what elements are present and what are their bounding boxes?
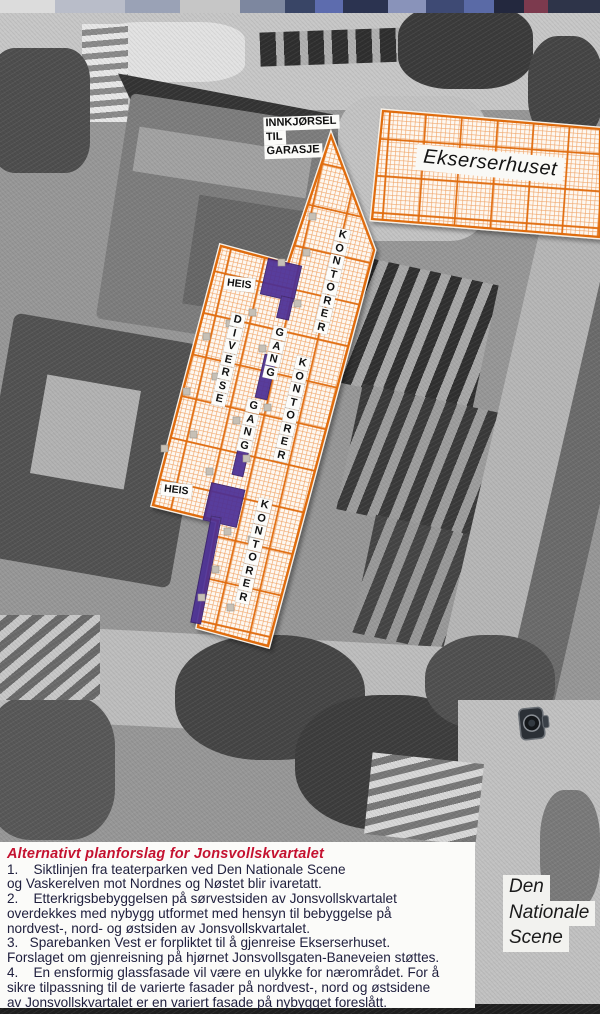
column-marker [259, 345, 266, 352]
note-line: 1. Siktlinjen fra teaterparken ved Den N… [7, 863, 475, 878]
nybygg-footprint [153, 136, 374, 646]
aerial-collage: INNKJØRSEL TIL GARASJE Ekserserhuset HEI… [0, 0, 600, 1014]
notes-heading: Alternativt planforslag for Jonsvollskva… [7, 846, 475, 863]
camera-icon [514, 701, 553, 749]
scene-label-line: Nationale [503, 901, 595, 927]
column-marker [206, 468, 213, 475]
scene-label-line: Scene [503, 926, 569, 952]
column-marker [243, 455, 250, 462]
column-marker [198, 594, 205, 601]
column-marker [203, 333, 210, 340]
column-marker [161, 445, 168, 452]
garage-label-line: TIL [264, 131, 286, 146]
note-line: og Vaskerelven mot Nordnes og Nøstet bli… [7, 877, 475, 892]
note-line: av Jonsvollskvartalet er en variert fasa… [7, 996, 475, 1011]
column-marker [190, 431, 197, 438]
note-line: nordvest-, nord- og østsiden av Jonsvoll… [7, 922, 475, 937]
column-marker [233, 417, 240, 424]
garage-label-line: GARASJE [264, 143, 323, 159]
garage-entrance-label: INNKJØRSEL TIL GARASJE [263, 115, 340, 160]
column-marker [183, 388, 190, 395]
note-line: 4. En ensformig glassfasade vil være en … [7, 966, 475, 981]
column-marker [224, 528, 231, 535]
column-marker [212, 566, 219, 573]
column-marker [309, 213, 316, 220]
scene-label-line: Den [503, 875, 550, 901]
note-line: overdekkes med nybygg utformet med hensy… [7, 907, 475, 922]
column-marker [278, 259, 285, 266]
den-nationale-scene-label: Den Nationale Scene [503, 875, 595, 952]
note-line: Forslaget om gjenreisning på hjørnet Jon… [7, 951, 475, 966]
column-marker [303, 249, 310, 256]
column-marker [227, 604, 234, 611]
note-line: 2. Etterkrigsbebyggelsen på sørvestsiden… [7, 892, 475, 907]
column-marker [294, 300, 301, 307]
note-line: 3. Sparebanken Vest er forpliktet til å … [7, 936, 475, 951]
notes-panel: Alternativt planforslag for Jonsvollskva… [0, 842, 475, 1008]
garage-label-line: INNKJØRSEL [263, 115, 339, 132]
column-marker [264, 404, 271, 411]
note-line: sikre tilpassning til de varierte fasade… [7, 981, 475, 996]
column-marker [249, 309, 256, 316]
